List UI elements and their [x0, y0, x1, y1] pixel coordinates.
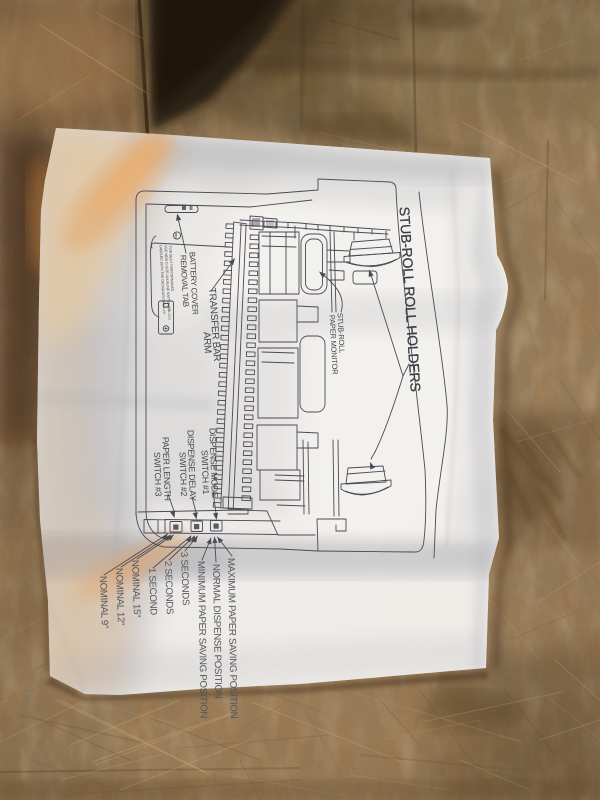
svg-text:NOMINAL 15″: NOMINAL 15″ [129, 560, 142, 619]
svg-text:ARM: ARM [201, 331, 213, 353]
svg-text:1 SECOND: 1 SECOND [146, 568, 159, 616]
svg-text:NOMINAL 12″: NOMINAL 12″ [113, 568, 126, 627]
svg-text:LR-20 D: LR-20 D [167, 308, 171, 321]
svg-text:NOMINAL 9″: NOMINAL 9″ [97, 576, 110, 630]
svg-text:SWITCH #2: SWITCH #2 [178, 452, 190, 497]
svg-text:3 SECONDS: 3 SECONDS [178, 552, 191, 606]
svg-text:2 SECONDS: 2 SECONDS [162, 561, 175, 615]
svg-text:NORMAL DISPENSE POSITION: NORMAL DISPENSE POSITION [210, 564, 223, 699]
svg-text:SWITCH #1: SWITCH #1 [200, 450, 212, 495]
svg-text:SWITCH #3: SWITCH #3 [152, 452, 164, 497]
